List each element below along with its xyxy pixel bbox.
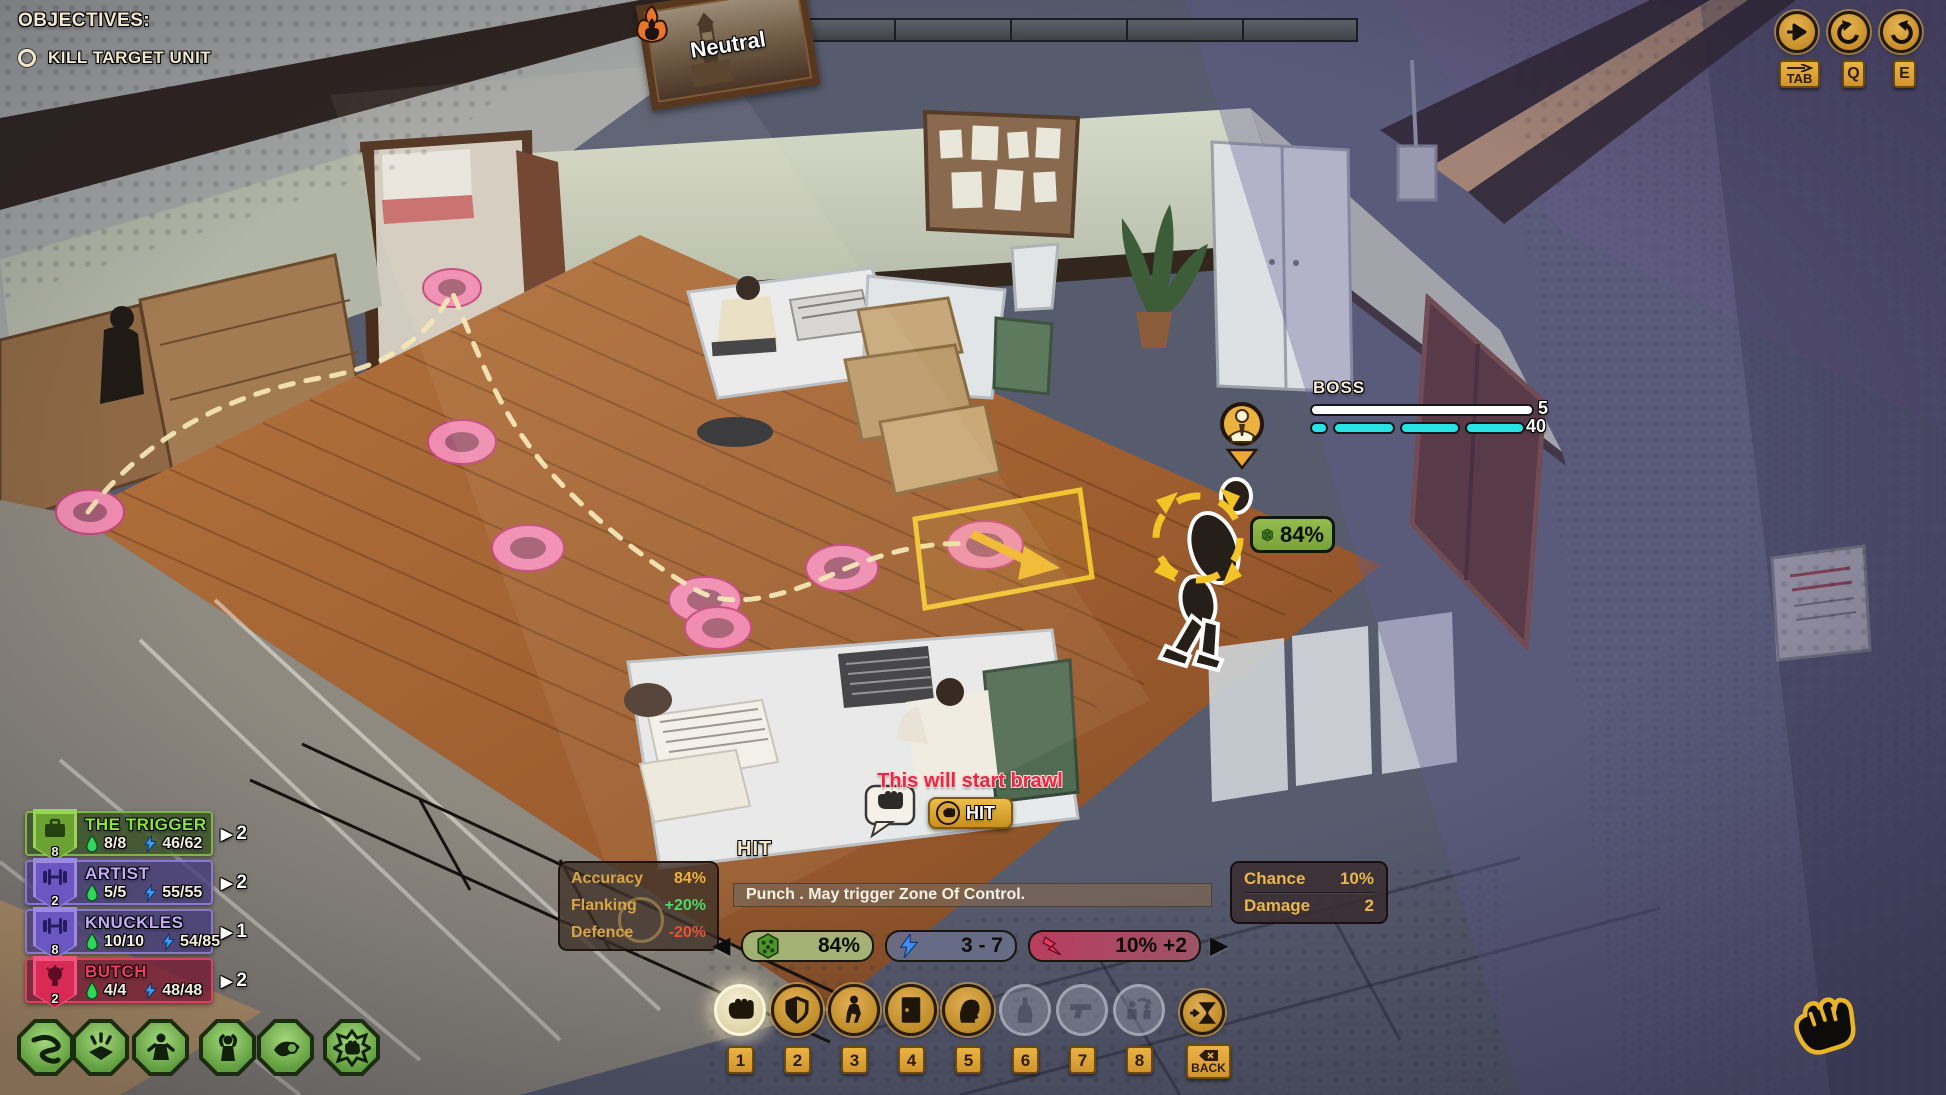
class-badge: 8 xyxy=(33,809,77,861)
key-hint-5: 5 xyxy=(955,1046,982,1074)
swap-icon xyxy=(1124,996,1154,1024)
squad-member-card[interactable]: 8 THE TRIGGER 8/8 46/62 ▶2 xyxy=(25,811,213,856)
head-icon xyxy=(954,995,982,1025)
sneak-icon xyxy=(840,995,868,1025)
objective-label: KILL TARGET UNIT xyxy=(48,48,211,68)
energy-icon xyxy=(144,884,157,902)
brawl-warning-text: This will start brawl xyxy=(862,770,1078,793)
ability-badge-bribe[interactable] xyxy=(257,1019,314,1076)
green-chair xyxy=(994,318,1052,394)
objectives-panel: OBJECTIVES: KILL TARGET UNIT xyxy=(18,10,211,68)
action-intimidate[interactable] xyxy=(942,984,994,1036)
dice-icon xyxy=(755,933,781,959)
snake-icon xyxy=(28,1030,64,1066)
key-hint-2: 2 xyxy=(784,1046,811,1074)
action-count: ▶2 xyxy=(221,823,247,845)
ability-badge-brawl[interactable] xyxy=(323,1019,380,1076)
dice-icon xyxy=(1261,521,1274,549)
dumbbell-icon xyxy=(42,867,68,887)
rotate-cw-icon xyxy=(1888,19,1914,45)
bottle-icon xyxy=(1012,995,1038,1025)
crit-chance-pill: 10% +2 xyxy=(1028,930,1201,962)
health-icon xyxy=(85,884,99,902)
detail-row: Damage2 xyxy=(1244,896,1374,916)
energy-icon xyxy=(144,835,157,853)
arrow-right-icon xyxy=(1785,20,1809,44)
damage-range-pill: 3 - 7 xyxy=(885,930,1017,962)
end-turn-button[interactable] xyxy=(1180,990,1225,1035)
fist-icon xyxy=(936,801,960,825)
persuade-icon xyxy=(143,1030,179,1066)
ability-badge-ambush[interactable] xyxy=(72,1019,129,1076)
key-hint-8: 8 xyxy=(1126,1046,1153,1074)
lightbulb-icon xyxy=(45,965,65,989)
key-hint-3: 3 xyxy=(841,1046,868,1074)
boss-stamina-value: 40 xyxy=(1526,416,1546,437)
ability-badge-sneak[interactable] xyxy=(17,1019,74,1076)
trash-bin xyxy=(1012,244,1058,310)
energy-icon xyxy=(144,982,157,1000)
key-hint-tab: TAB xyxy=(1779,60,1820,88)
pistol-icon xyxy=(1068,996,1096,1024)
action-description: Punch . May trigger Zone Of Control. xyxy=(733,883,1212,907)
key-hint-q: Q xyxy=(1842,60,1865,88)
rotate-ccw-icon xyxy=(1836,19,1862,45)
confirm-hit-button[interactable]: HIT xyxy=(928,797,1013,829)
confirm-hit-label: HIT xyxy=(966,803,995,824)
dumbbell-icon xyxy=(42,916,68,936)
hit-chance-badge: 84% xyxy=(1250,516,1335,553)
squad-member-card[interactable]: 8 KNUCKLES 10/10 54/85 ▶1 xyxy=(25,909,213,954)
action-count: ▶1 xyxy=(221,921,247,943)
brawl-fist-icon xyxy=(333,1029,371,1067)
flame-icon xyxy=(636,4,668,44)
next-action-arrow[interactable]: ▶ xyxy=(1210,934,1228,958)
briefcase-icon xyxy=(43,818,67,840)
boss-health-bar xyxy=(1310,404,1534,416)
shield-icon xyxy=(783,995,811,1025)
hit-chance-value: 84% xyxy=(1280,522,1324,548)
energy-icon xyxy=(162,933,175,951)
door-icon xyxy=(898,995,924,1025)
class-badge: 2 xyxy=(33,858,77,910)
rotate-left-button[interactable] xyxy=(1828,11,1870,53)
key-hint-6: 6 xyxy=(1012,1046,1039,1074)
action-count: ▶2 xyxy=(221,872,247,894)
hourglass-icon xyxy=(1189,999,1217,1027)
detail-row: Chance10% xyxy=(1244,869,1374,889)
center-camera-button[interactable] xyxy=(1776,11,1818,53)
backspace-icon xyxy=(1199,1050,1219,1061)
key-hint-1: 1 xyxy=(727,1046,754,1074)
boss-name-label: BOSS xyxy=(1313,378,1365,398)
objectives-title: OBJECTIVES: xyxy=(18,10,211,32)
squad-member-card[interactable]: 2 ARTIST 5/5 55/55 ▶2 xyxy=(25,860,213,905)
detail-panel: Chance10% Damage2 xyxy=(1230,861,1388,924)
fist-icon xyxy=(725,995,755,1025)
lightning-icon xyxy=(899,934,919,958)
action-pistol xyxy=(1056,984,1108,1036)
surrender-icon xyxy=(210,1030,246,1066)
health-icon xyxy=(85,933,99,951)
action-title: HIT xyxy=(737,838,772,861)
modifier-row: Accuracy84% xyxy=(571,870,706,888)
action-count: ▶2 xyxy=(221,970,247,992)
ability-badge-surrender[interactable] xyxy=(199,1019,256,1076)
key-hint-e: E xyxy=(1893,60,1916,88)
objective-checkbox-icon xyxy=(18,49,36,67)
modifier-row: Flanking+20% xyxy=(571,897,706,915)
objective-item: KILL TARGET UNIT xyxy=(18,48,211,68)
action-swap-target xyxy=(1113,984,1165,1036)
key-hint-7: 7 xyxy=(1069,1046,1096,1074)
game-screen: OBJECTIVES: KILL TARGET UNIT Neutral TAB… xyxy=(0,0,1946,1095)
key-hint-back: BACK xyxy=(1186,1044,1231,1079)
prev-action-arrow[interactable]: ◀ xyxy=(712,934,730,958)
rotate-right-button[interactable] xyxy=(1880,11,1922,53)
action-defend[interactable] xyxy=(771,984,823,1036)
health-icon xyxy=(85,982,99,1000)
ambush-icon xyxy=(83,1030,119,1066)
action-bottle xyxy=(999,984,1051,1036)
health-icon xyxy=(85,835,99,853)
key-hint-4: 4 xyxy=(898,1046,925,1074)
action-punch[interactable] xyxy=(714,984,766,1036)
strike-icon xyxy=(1042,934,1064,958)
modifier-row: Defence-20% xyxy=(571,924,706,942)
action-door[interactable] xyxy=(885,984,937,1036)
action-sneak[interactable] xyxy=(828,984,880,1036)
ability-badge-persuade[interactable] xyxy=(132,1019,189,1076)
squad-member-card[interactable]: 2 BUTCH 4/4 48/48 ▶2 xyxy=(25,958,213,1003)
class-badge: 2 xyxy=(33,956,77,1008)
class-badge: 8 xyxy=(33,907,77,959)
bribe-icon xyxy=(268,1030,304,1066)
boss-stamina-bar xyxy=(1310,422,1525,434)
modifier-panel: Accuracy84% Flanking+20% Defence-20% xyxy=(558,861,719,951)
hit-chance-pill: 84% xyxy=(741,930,874,962)
